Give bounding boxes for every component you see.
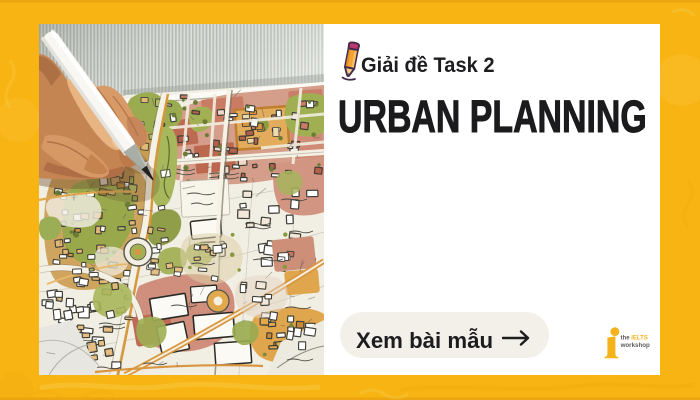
svg-text:workshop: workshop: [620, 342, 650, 349]
svg-text:the IELTS: the IELTS: [621, 336, 648, 342]
